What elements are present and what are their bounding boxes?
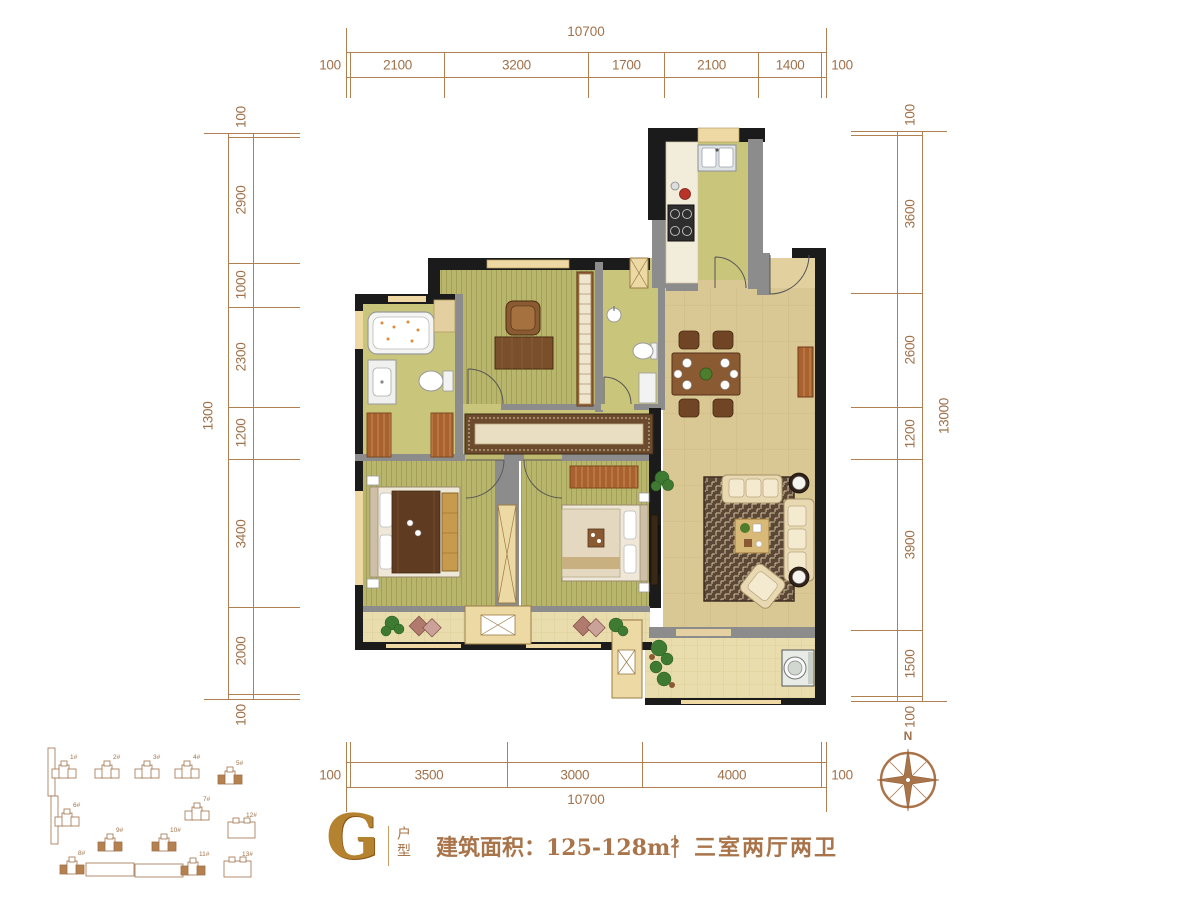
site-building-12: 12# <box>228 812 257 838</box>
dimension-line <box>758 52 759 98</box>
dimension-line <box>851 293 923 294</box>
dimension-line <box>821 52 822 98</box>
dimension-line <box>228 607 300 608</box>
site-building-label: 10# <box>170 827 181 834</box>
dimension-line <box>851 696 923 697</box>
site-building-11: 11# <box>135 851 210 877</box>
site-building-10: 10# <box>152 827 181 851</box>
washing-machine-icon <box>782 650 814 686</box>
vanity-icon <box>368 360 396 404</box>
toilet2-icon <box>633 343 657 359</box>
dimension-line <box>851 630 923 631</box>
dimension-line <box>821 742 822 788</box>
site-building-6: 6# <box>51 796 81 844</box>
dimension-line <box>851 701 947 702</box>
dimension-line <box>228 407 300 408</box>
dining-chair-icon <box>679 399 699 417</box>
site-building-label: 8# <box>78 850 86 857</box>
dimension-line <box>826 742 827 812</box>
dimension-line <box>444 52 445 98</box>
dimension-line <box>346 52 826 53</box>
pillow-icon <box>380 493 392 527</box>
site-building-label: 13# <box>242 851 253 858</box>
site-building-1: 1# <box>48 748 78 796</box>
balcony-window-1 <box>386 644 461 648</box>
left-window-1 <box>355 311 363 349</box>
dimension-line <box>851 131 947 132</box>
bedroom2 <box>562 466 649 592</box>
hall-closet <box>630 258 648 288</box>
dimension-value: 1700 <box>612 58 641 73</box>
stove-icon <box>668 205 694 241</box>
dimension-value: 100 <box>831 58 853 73</box>
nightstand-icon <box>367 476 379 485</box>
dim-total-top: 10700 <box>346 24 826 39</box>
floorplan-page: { "dimensions": { "top": {"total": "1070… <box>0 0 1200 900</box>
dimension-value: 2100 <box>383 58 412 73</box>
site-building-label: 2# <box>113 754 121 761</box>
dimension-line <box>228 459 300 460</box>
dimension-value: 1200 <box>903 419 918 448</box>
side-table-icon <box>789 473 809 493</box>
dimension-line <box>851 407 923 408</box>
dimension-value: 3500 <box>415 768 444 783</box>
site-building-label: 4# <box>193 754 201 761</box>
bed-tray-icon <box>588 529 604 547</box>
floor-plan <box>346 125 826 705</box>
site-building-5: 5# <box>218 760 244 784</box>
title-separator: ｜ <box>664 830 686 862</box>
kettle-icon <box>671 182 679 190</box>
balcony-window-2 <box>526 644 601 648</box>
dressing-cabinet-left <box>367 413 391 457</box>
dimension-line <box>507 742 508 788</box>
vanity2-icon <box>639 373 656 403</box>
dim-total-right: 13000 <box>937 398 952 434</box>
site-building-label: 1# <box>70 754 78 761</box>
utility-door <box>676 629 731 636</box>
dimension-value: 1200 <box>234 419 249 448</box>
dimension-value: 3000 <box>560 768 589 783</box>
left-window-2 <box>355 491 363 585</box>
site-building-4: 4# <box>175 754 201 778</box>
dimension-line <box>346 77 826 78</box>
site-building-8: 8# <box>60 850 134 876</box>
dimension-value: 100 <box>234 106 249 128</box>
compass-north-label: N <box>904 729 913 743</box>
unit-type-label: 户型 <box>388 826 414 866</box>
dimension-line <box>204 699 300 700</box>
dimension-value: 2300 <box>234 343 249 372</box>
toilet-icon <box>419 371 453 391</box>
dimension-line <box>826 28 827 98</box>
sofa-icon <box>722 475 782 503</box>
dimension-line <box>204 133 300 134</box>
dim-total-bottom: 10700 <box>346 792 826 807</box>
site-building-label: 6# <box>73 802 81 809</box>
dimension-line <box>664 52 665 98</box>
site-building-label: 5# <box>236 760 244 767</box>
site-building-2: 2# <box>95 754 121 778</box>
desk-icon <box>495 337 553 369</box>
site-building-13: 13# <box>224 851 253 877</box>
dimension-value: 100 <box>319 768 341 783</box>
dimension-chain-left: 100290010002300120034002000100 <box>228 133 254 699</box>
dimension-value: 2900 <box>234 186 249 215</box>
dimension-value: 3400 <box>234 519 249 548</box>
dimension-line <box>228 137 300 138</box>
dimension-line <box>228 307 300 308</box>
site-building-label: 12# <box>246 812 257 819</box>
dining-chair-icon <box>679 331 699 349</box>
dimension-line <box>851 135 923 136</box>
bedroom1 <box>367 476 460 588</box>
dimension-chain-right: 10036002600120039001500100 <box>897 131 923 701</box>
layout-label: 三室两厅两卫 <box>694 830 838 862</box>
site-building-label: 9# <box>116 827 124 834</box>
dim-total-left: 1300 <box>201 402 216 431</box>
kitchen-window <box>698 128 739 142</box>
dressing-cabinet-right <box>431 413 453 457</box>
dimension-value: 1000 <box>234 271 249 300</box>
dimension-line <box>642 742 643 788</box>
area-label: 建筑面积：125-128m² <box>436 830 680 862</box>
dimension-chain-bottom: 100350030004000100 <box>346 762 826 788</box>
dining-chair-icon <box>713 399 733 417</box>
site-building-label: 11# <box>199 851 210 858</box>
dimension-line <box>346 28 347 98</box>
site-plan-key: 1#2#3#4#5#6#7#12#9#10#8#11#13# <box>38 742 273 892</box>
pillow-icon <box>380 535 392 569</box>
site-building-7: 7# <box>185 796 211 820</box>
hall-runner-rug <box>465 414 653 454</box>
dimension-value: 3200 <box>502 58 531 73</box>
dimension-line <box>897 131 898 701</box>
bookshelf-icon <box>577 272 593 406</box>
pillow-icon <box>624 545 636 573</box>
dining-chair-icon <box>713 331 733 349</box>
coffee-table-icon <box>735 519 769 553</box>
dimension-value: 100 <box>319 58 341 73</box>
site-building-label: 7# <box>203 796 211 803</box>
tv-stand-icon <box>651 515 658 585</box>
dimension-value: 100 <box>831 768 853 783</box>
dimension-value: 100 <box>903 706 918 728</box>
nightstand-icon <box>367 579 379 588</box>
dimension-line <box>346 787 826 788</box>
dimension-value: 3900 <box>903 531 918 560</box>
dimension-value: 100 <box>903 104 918 126</box>
pot-icon <box>680 189 691 200</box>
dimension-line <box>253 133 254 699</box>
wardrobe-partition <box>498 505 516 603</box>
kitchen-sink-icon <box>698 145 736 171</box>
centerpiece-plant-icon <box>700 368 712 380</box>
side-table-icon <box>789 567 809 587</box>
dimension-line <box>346 762 826 763</box>
dimension-value: 1500 <box>903 649 918 678</box>
dimension-line <box>350 52 351 98</box>
site-building-label: 3# <box>153 754 161 761</box>
dimension-value: 2000 <box>234 637 249 666</box>
study-window <box>487 260 569 268</box>
sideboard-icon <box>798 347 813 397</box>
dimension-value: 3600 <box>903 200 918 229</box>
dimension-value: 2100 <box>697 58 726 73</box>
dimension-value: 100 <box>234 704 249 726</box>
dimension-value: 1400 <box>776 58 805 73</box>
dimension-chain-top: 10021003200170021001400100 <box>346 52 826 78</box>
nightstand-icon <box>639 583 649 592</box>
dimension-value: 2600 <box>903 336 918 365</box>
bath-counter <box>434 300 455 332</box>
compass: N <box>868 726 948 826</box>
pillow-icon <box>624 511 636 539</box>
bed-bench-icon <box>442 493 458 571</box>
bed2-wardrobe <box>570 466 638 488</box>
dimension-line <box>228 694 300 695</box>
dimension-line <box>588 52 589 98</box>
dimension-line <box>228 263 300 264</box>
utility-window <box>681 700 781 704</box>
site-building-9: 9# <box>98 827 124 851</box>
dimension-line <box>350 742 351 788</box>
balcony-cabinet <box>465 606 531 644</box>
foyer-floor <box>763 258 815 288</box>
dimension-value: 4000 <box>717 768 746 783</box>
dimension-line <box>922 131 923 701</box>
nightstand-icon <box>639 493 649 502</box>
dimension-line <box>851 459 923 460</box>
dimension-line <box>228 133 229 699</box>
site-building-3: 3# <box>135 754 161 778</box>
bath1-window <box>388 296 426 302</box>
unit-letter: G <box>326 806 379 868</box>
